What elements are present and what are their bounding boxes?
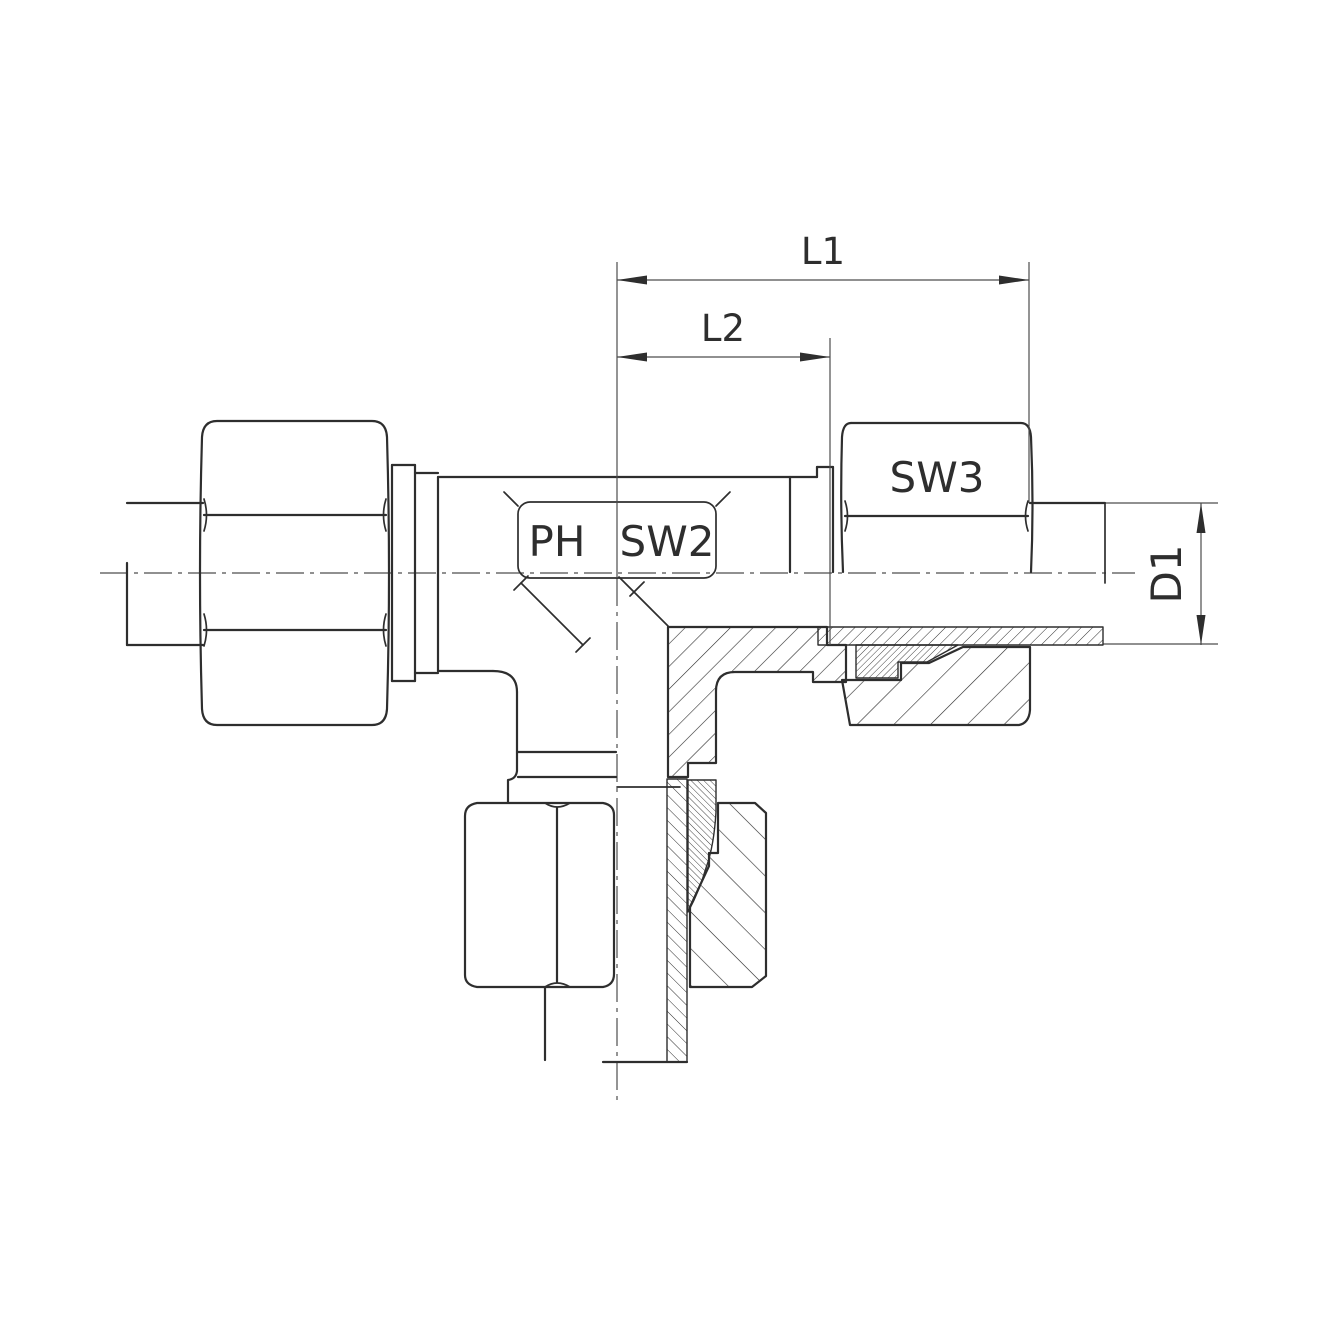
label-l1: L1 — [801, 230, 845, 273]
bottom-tube — [545, 988, 687, 1062]
bottom-nut-body — [465, 803, 614, 987]
bottom-union-nut — [465, 803, 614, 987]
right-nut-left-edge — [841, 423, 851, 572]
section-right-arm — [619, 577, 1103, 777]
label-sw2: SW2 — [620, 517, 715, 566]
label-sw3: SW3 — [890, 453, 985, 502]
section-bottom-branch — [617, 779, 766, 1062]
bore-chamfer-left — [514, 576, 590, 652]
bore-chamfer-right — [619, 577, 668, 626]
label-l2: L2 — [701, 307, 745, 350]
label-d1: D1 — [1142, 544, 1191, 603]
drawing-canvas: PH SW2 SW3 L1 L2 D1 — [0, 0, 1320, 1320]
tube-wall-section-hatch-bottom — [667, 779, 687, 1062]
tee-fitting-technical-drawing: PH SW2 SW3 L1 L2 D1 — [0, 0, 1320, 1320]
body-section-hatch — [668, 627, 846, 777]
bottom-branch-outline — [508, 692, 616, 802]
tube-wall-section-hatch-right — [818, 627, 1103, 645]
body-bottom-fillet — [493, 671, 517, 692]
left-tube — [127, 503, 203, 645]
dimension-d1: D1 — [1142, 503, 1206, 645]
label-ph: PH — [529, 517, 586, 566]
